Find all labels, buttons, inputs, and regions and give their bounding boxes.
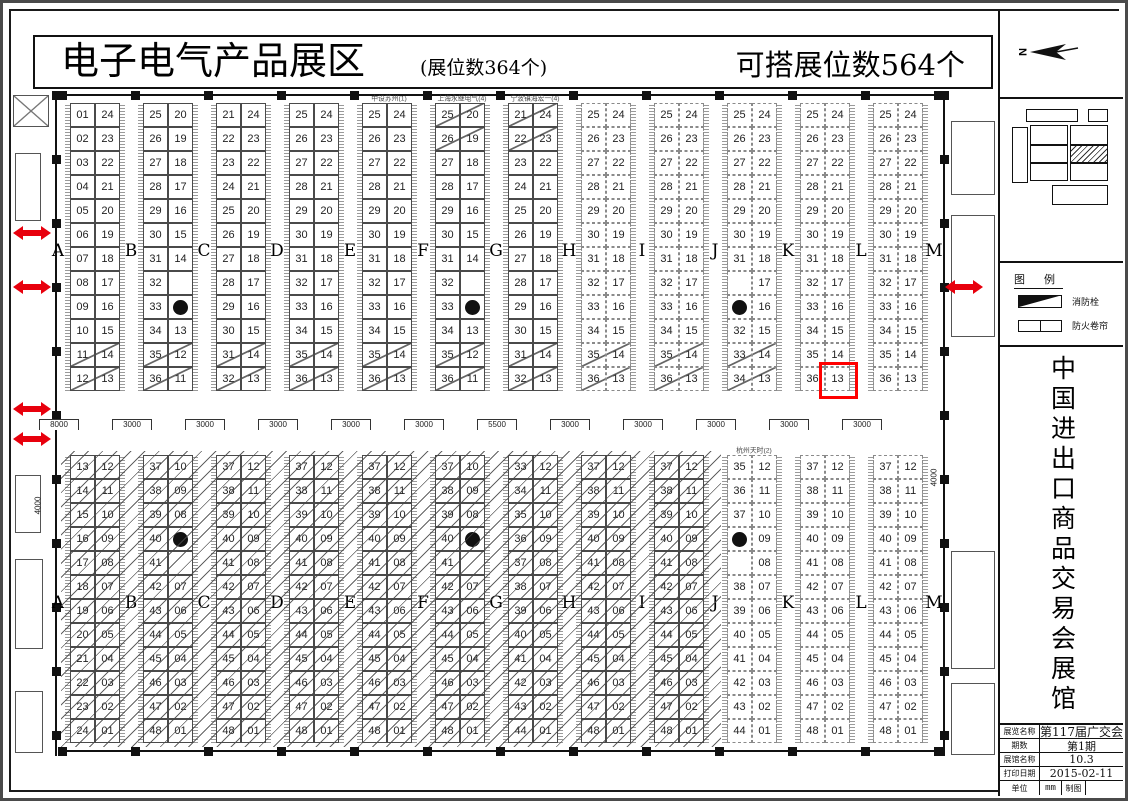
booth-cell[interactable]: 14 bbox=[387, 343, 412, 367]
booth-cell[interactable]: 42 bbox=[581, 575, 606, 599]
booth-cell[interactable]: 21 bbox=[70, 647, 95, 671]
booth-cell[interactable]: 18 bbox=[95, 247, 120, 271]
booth-cell[interactable]: 17 bbox=[825, 271, 850, 295]
booth-cell[interactable]: 39 bbox=[435, 503, 460, 527]
booth-cell[interactable]: 10 bbox=[70, 319, 95, 343]
booth-cell[interactable]: 38 bbox=[508, 575, 533, 599]
booth-cell[interactable]: 37 bbox=[654, 455, 679, 479]
booth-cell[interactable]: 01 bbox=[168, 719, 193, 743]
booth-cell[interactable]: 48 bbox=[581, 719, 606, 743]
booth-cell[interactable]: 40 bbox=[362, 527, 387, 551]
booth-cell[interactable]: 17 bbox=[679, 271, 704, 295]
booth-cell[interactable]: 44 bbox=[654, 623, 679, 647]
booth-cell[interactable]: 29 bbox=[216, 295, 241, 319]
booth-cell[interactable]: 28 bbox=[362, 175, 387, 199]
booth-cell[interactable]: 07 bbox=[95, 575, 120, 599]
booth-cell[interactable]: 05 bbox=[606, 623, 631, 647]
booth-cell[interactable]: 25 bbox=[800, 103, 825, 127]
booth-cell[interactable]: 09 bbox=[460, 479, 485, 503]
booth-cell[interactable]: 35 bbox=[435, 343, 460, 367]
booth-cell[interactable]: 24 bbox=[95, 103, 120, 127]
booth-cell[interactable]: 10 bbox=[533, 503, 558, 527]
booth-cell[interactable]: 14 bbox=[241, 343, 266, 367]
booth-cell[interactable]: 09 bbox=[898, 527, 923, 551]
booth-cell[interactable]: 41 bbox=[143, 551, 168, 575]
booth-cell[interactable]: 30 bbox=[216, 319, 241, 343]
booth-cell[interactable]: 17 bbox=[387, 271, 412, 295]
booth-cell[interactable]: 07 bbox=[898, 575, 923, 599]
booth-cell[interactable]: 09 bbox=[752, 527, 777, 551]
booth-cell[interactable]: 03 bbox=[679, 671, 704, 695]
booth-cell[interactable]: 07 bbox=[70, 247, 95, 271]
booth-cell[interactable]: 21 bbox=[606, 175, 631, 199]
booth-cell[interactable]: 02 bbox=[825, 695, 850, 719]
booth-cell[interactable]: 16 bbox=[387, 295, 412, 319]
booth-cell[interactable]: 17 bbox=[70, 551, 95, 575]
booth-cell[interactable]: 09 bbox=[241, 527, 266, 551]
booth-cell[interactable]: 06 bbox=[606, 599, 631, 623]
booth-cell[interactable]: 05 bbox=[168, 623, 193, 647]
booth-cell[interactable]: 28 bbox=[654, 175, 679, 199]
booth-cell[interactable]: 35 bbox=[873, 343, 898, 367]
booth-cell[interactable]: 16 bbox=[168, 199, 193, 223]
booth-cell[interactable]: 11 bbox=[241, 479, 266, 503]
booth-cell[interactable]: 13 bbox=[95, 367, 120, 391]
booth-cell[interactable]: 33 bbox=[800, 295, 825, 319]
booth-cell[interactable]: 26 bbox=[435, 127, 460, 151]
booth-cell[interactable]: 09 bbox=[70, 295, 95, 319]
booth-cell[interactable]: 06 bbox=[70, 223, 95, 247]
booth-cell[interactable]: 18 bbox=[825, 247, 850, 271]
booth-cell[interactable]: 17 bbox=[241, 271, 266, 295]
booth-cell[interactable]: 07 bbox=[460, 575, 485, 599]
booth-cell[interactable]: 08 bbox=[460, 503, 485, 527]
booth-cell[interactable]: 34 bbox=[654, 319, 679, 343]
booth-cell[interactable]: 11 bbox=[606, 479, 631, 503]
booth-cell[interactable]: 33 bbox=[581, 295, 606, 319]
booth-cell[interactable]: 45 bbox=[581, 647, 606, 671]
booth-cell[interactable]: 35 bbox=[581, 343, 606, 367]
booth-cell[interactable]: 12 bbox=[70, 367, 95, 391]
booth-cell[interactable]: 38 bbox=[289, 479, 314, 503]
booth-cell[interactable]: 37 bbox=[362, 455, 387, 479]
booth-cell[interactable]: 05 bbox=[533, 623, 558, 647]
booth-cell[interactable]: 34 bbox=[800, 319, 825, 343]
booth-cell[interactable]: 06 bbox=[314, 599, 339, 623]
booth-cell[interactable]: 16 bbox=[752, 295, 777, 319]
booth-cell[interactable]: 26 bbox=[727, 127, 752, 151]
booth-cell[interactable]: 46 bbox=[143, 671, 168, 695]
booth-cell[interactable]: 13 bbox=[314, 367, 339, 391]
booth-cell[interactable]: 22 bbox=[314, 151, 339, 175]
booth-cell[interactable]: 35 bbox=[362, 343, 387, 367]
booth-cell[interactable]: 28 bbox=[727, 175, 752, 199]
booth-cell[interactable]: 03 bbox=[898, 671, 923, 695]
booth-cell[interactable]: 19 bbox=[898, 223, 923, 247]
booth-cell[interactable]: 10 bbox=[825, 503, 850, 527]
booth-cell[interactable]: 29 bbox=[289, 199, 314, 223]
booth-cell[interactable]: 41 bbox=[216, 551, 241, 575]
booth-cell[interactable]: 40 bbox=[727, 623, 752, 647]
booth-cell[interactable]: 12 bbox=[825, 455, 850, 479]
booth-cell[interactable]: 18 bbox=[168, 151, 193, 175]
booth-cell[interactable]: 01 bbox=[752, 719, 777, 743]
booth-cell[interactable]: 15 bbox=[898, 319, 923, 343]
booth-cell[interactable]: 21 bbox=[314, 175, 339, 199]
booth-cell[interactable]: 37 bbox=[508, 551, 533, 575]
booth-cell[interactable]: 44 bbox=[508, 719, 533, 743]
booth-cell[interactable]: 47 bbox=[289, 695, 314, 719]
booth-cell[interactable]: 26 bbox=[654, 127, 679, 151]
booth-cell[interactable]: 13 bbox=[533, 367, 558, 391]
booth-cell[interactable]: 47 bbox=[435, 695, 460, 719]
booth-cell[interactable]: 39 bbox=[800, 503, 825, 527]
booth-cell[interactable]: 42 bbox=[143, 575, 168, 599]
booth-cell[interactable]: 46 bbox=[216, 671, 241, 695]
booth-cell[interactable]: 12 bbox=[241, 455, 266, 479]
booth-cell[interactable]: 46 bbox=[873, 671, 898, 695]
booth-cell[interactable]: 06 bbox=[752, 599, 777, 623]
booth-cell[interactable]: 25 bbox=[289, 103, 314, 127]
booth-cell[interactable]: 22 bbox=[387, 151, 412, 175]
booth-cell[interactable]: 04 bbox=[70, 175, 95, 199]
booth-cell[interactable]: 15 bbox=[168, 223, 193, 247]
booth-cell[interactable]: 33 bbox=[435, 295, 460, 319]
booth-cell[interactable]: 11 bbox=[168, 367, 193, 391]
booth-cell[interactable]: 07 bbox=[679, 575, 704, 599]
booth-cell[interactable]: 03 bbox=[752, 671, 777, 695]
booth-cell[interactable]: 08 bbox=[533, 551, 558, 575]
booth-cell[interactable]: 04 bbox=[825, 647, 850, 671]
booth-cell[interactable]: 42 bbox=[508, 671, 533, 695]
booth-cell[interactable]: 08 bbox=[606, 551, 631, 575]
booth-cell[interactable]: 10 bbox=[606, 503, 631, 527]
booth-cell[interactable]: 15 bbox=[241, 319, 266, 343]
booth-cell[interactable]: 19 bbox=[95, 223, 120, 247]
booth-cell[interactable]: 02 bbox=[70, 127, 95, 151]
booth-cell[interactable]: 09 bbox=[533, 527, 558, 551]
booth-cell[interactable]: 11 bbox=[679, 479, 704, 503]
booth-cell[interactable]: 30 bbox=[508, 319, 533, 343]
booth-cell[interactable]: 19 bbox=[70, 599, 95, 623]
booth-cell[interactable]: 02 bbox=[314, 695, 339, 719]
booth-cell[interactable]: 41 bbox=[581, 551, 606, 575]
booth-cell[interactable]: 13 bbox=[679, 367, 704, 391]
booth-cell[interactable]: 04 bbox=[95, 647, 120, 671]
booth-cell[interactable]: 31 bbox=[289, 247, 314, 271]
booth-cell[interactable]: 21 bbox=[216, 103, 241, 127]
booth-cell[interactable]: 45 bbox=[289, 647, 314, 671]
booth-cell[interactable]: 04 bbox=[314, 647, 339, 671]
booth-cell[interactable]: 06 bbox=[898, 599, 923, 623]
booth-cell[interactable]: 33 bbox=[508, 455, 533, 479]
booth-cell[interactable]: 21 bbox=[95, 175, 120, 199]
booth-cell[interactable]: 04 bbox=[241, 647, 266, 671]
booth-cell[interactable]: 13 bbox=[606, 367, 631, 391]
booth-cell[interactable]: 32 bbox=[508, 367, 533, 391]
booth-cell[interactable]: 10 bbox=[241, 503, 266, 527]
booth-cell[interactable]: 32 bbox=[800, 271, 825, 295]
booth-cell[interactable]: 22 bbox=[70, 671, 95, 695]
booth-cell[interactable]: 21 bbox=[825, 175, 850, 199]
booth-cell[interactable]: 23 bbox=[216, 151, 241, 175]
booth-cell[interactable]: 14 bbox=[898, 343, 923, 367]
booth-cell[interactable]: 32 bbox=[727, 319, 752, 343]
booth-cell[interactable]: 05 bbox=[460, 623, 485, 647]
booth-cell[interactable]: 25 bbox=[362, 103, 387, 127]
booth-cell[interactable]: 33 bbox=[727, 343, 752, 367]
booth-cell[interactable]: 36 bbox=[873, 367, 898, 391]
booth-cell[interactable]: 05 bbox=[679, 623, 704, 647]
booth-cell[interactable]: 11 bbox=[533, 479, 558, 503]
booth-cell[interactable]: 18 bbox=[460, 151, 485, 175]
booth-cell[interactable]: 01 bbox=[387, 719, 412, 743]
booth-cell[interactable]: 21 bbox=[533, 175, 558, 199]
booth-cell[interactable]: 18 bbox=[241, 247, 266, 271]
booth-cell[interactable]: 43 bbox=[143, 599, 168, 623]
booth-cell[interactable]: 23 bbox=[679, 127, 704, 151]
booth-cell[interactable]: 17 bbox=[460, 175, 485, 199]
booth-cell[interactable]: 32 bbox=[581, 271, 606, 295]
booth-cell[interactable]: 45 bbox=[216, 647, 241, 671]
booth-cell[interactable]: 19 bbox=[314, 223, 339, 247]
booth-cell[interactable]: 05 bbox=[95, 623, 120, 647]
booth-cell[interactable]: 06 bbox=[241, 599, 266, 623]
booth-cell[interactable]: 07 bbox=[387, 575, 412, 599]
booth-cell[interactable]: 22 bbox=[508, 127, 533, 151]
booth-cell[interactable]: 05 bbox=[752, 623, 777, 647]
booth-cell[interactable]: 37 bbox=[216, 455, 241, 479]
booth-cell[interactable]: 29 bbox=[362, 199, 387, 223]
booth-cell[interactable]: 29 bbox=[727, 199, 752, 223]
booth-cell[interactable]: 15 bbox=[533, 319, 558, 343]
booth-cell[interactable]: 01 bbox=[533, 719, 558, 743]
booth-cell[interactable]: 27 bbox=[581, 151, 606, 175]
booth-cell[interactable]: 24 bbox=[216, 175, 241, 199]
booth-cell[interactable]: 22 bbox=[606, 151, 631, 175]
booth-cell[interactable]: 48 bbox=[362, 719, 387, 743]
booth-cell[interactable]: 05 bbox=[898, 623, 923, 647]
booth-cell[interactable]: 30 bbox=[800, 223, 825, 247]
booth-cell[interactable]: 22 bbox=[825, 151, 850, 175]
booth-cell[interactable]: 47 bbox=[654, 695, 679, 719]
booth-cell[interactable]: 24 bbox=[898, 103, 923, 127]
booth-cell[interactable]: 38 bbox=[581, 479, 606, 503]
booth-cell[interactable]: 29 bbox=[581, 199, 606, 223]
booth-cell[interactable]: 23 bbox=[825, 127, 850, 151]
booth-cell[interactable]: 26 bbox=[216, 223, 241, 247]
booth-cell[interactable]: 30 bbox=[435, 223, 460, 247]
booth-cell[interactable]: 06 bbox=[168, 599, 193, 623]
booth-cell[interactable]: 27 bbox=[216, 247, 241, 271]
booth-cell[interactable]: 13 bbox=[241, 367, 266, 391]
booth-cell[interactable]: 20 bbox=[825, 199, 850, 223]
booth-cell[interactable]: 24 bbox=[70, 719, 95, 743]
booth-cell[interactable]: 30 bbox=[362, 223, 387, 247]
booth-cell[interactable]: 30 bbox=[581, 223, 606, 247]
booth-cell[interactable]: 03 bbox=[460, 671, 485, 695]
booth-cell[interactable]: 06 bbox=[533, 599, 558, 623]
booth-cell[interactable]: 47 bbox=[216, 695, 241, 719]
booth-cell[interactable]: 03 bbox=[387, 671, 412, 695]
booth-cell[interactable]: 33 bbox=[654, 295, 679, 319]
booth-cell[interactable]: 18 bbox=[70, 575, 95, 599]
booth-cell[interactable]: 04 bbox=[679, 647, 704, 671]
booth-cell[interactable]: 40 bbox=[143, 527, 168, 551]
booth-cell[interactable]: 02 bbox=[168, 695, 193, 719]
booth-cell[interactable]: 15 bbox=[314, 319, 339, 343]
booth-cell[interactable]: 14 bbox=[679, 343, 704, 367]
booth-cell[interactable]: 10 bbox=[387, 503, 412, 527]
booth-cell[interactable]: 36 bbox=[289, 367, 314, 391]
booth-cell[interactable]: 12 bbox=[387, 455, 412, 479]
booth-cell[interactable]: 22 bbox=[216, 127, 241, 151]
booth-cell[interactable]: 42 bbox=[362, 575, 387, 599]
booth-cell[interactable]: 14 bbox=[95, 343, 120, 367]
booth-cell[interactable]: 29 bbox=[873, 199, 898, 223]
booth-cell[interactable]: 26 bbox=[581, 127, 606, 151]
booth-cell[interactable]: 37 bbox=[435, 455, 460, 479]
booth-cell[interactable]: 20 bbox=[752, 199, 777, 223]
booth-cell[interactable]: 28 bbox=[143, 175, 168, 199]
booth-cell[interactable]: 15 bbox=[825, 319, 850, 343]
booth-cell[interactable]: 01 bbox=[606, 719, 631, 743]
booth-cell[interactable]: 25 bbox=[216, 199, 241, 223]
booth-cell[interactable]: 20 bbox=[606, 199, 631, 223]
booth-cell[interactable]: 30 bbox=[289, 223, 314, 247]
booth-cell[interactable]: 16 bbox=[95, 295, 120, 319]
booth-cell[interactable]: 04 bbox=[387, 647, 412, 671]
booth-cell[interactable]: 08 bbox=[241, 551, 266, 575]
booth-cell[interactable]: 21 bbox=[387, 175, 412, 199]
booth-cell[interactable]: 05 bbox=[387, 623, 412, 647]
booth-cell[interactable]: 35 bbox=[727, 455, 752, 479]
booth-cell[interactable]: 34 bbox=[508, 479, 533, 503]
booth-cell[interactable]: 30 bbox=[143, 223, 168, 247]
booth-cell[interactable]: 44 bbox=[362, 623, 387, 647]
booth-cell[interactable]: 31 bbox=[581, 247, 606, 271]
booth-cell[interactable]: 16 bbox=[460, 199, 485, 223]
booth-cell[interactable]: 02 bbox=[95, 695, 120, 719]
booth-cell[interactable]: 36 bbox=[362, 367, 387, 391]
booth-cell[interactable]: 15 bbox=[752, 319, 777, 343]
booth-cell[interactable]: 02 bbox=[460, 695, 485, 719]
booth-cell[interactable]: 12 bbox=[460, 343, 485, 367]
booth-cell[interactable]: 12 bbox=[752, 455, 777, 479]
booth-cell[interactable]: 38 bbox=[362, 479, 387, 503]
booth-cell[interactable]: 15 bbox=[95, 319, 120, 343]
booth-cell[interactable]: 09 bbox=[606, 527, 631, 551]
booth-cell[interactable]: 24 bbox=[679, 103, 704, 127]
booth-cell[interactable]: 31 bbox=[873, 247, 898, 271]
booth-cell[interactable]: 03 bbox=[95, 671, 120, 695]
booth-cell[interactable]: 41 bbox=[508, 647, 533, 671]
booth-cell[interactable]: 38 bbox=[654, 479, 679, 503]
booth-cell[interactable]: 27 bbox=[654, 151, 679, 175]
booth-cell[interactable]: 21 bbox=[898, 175, 923, 199]
booth-cell[interactable]: 23 bbox=[752, 127, 777, 151]
booth-cell[interactable]: 28 bbox=[581, 175, 606, 199]
booth-cell[interactable]: 32 bbox=[362, 271, 387, 295]
booth-cell[interactable]: 16 bbox=[898, 295, 923, 319]
booth-cell[interactable]: 32 bbox=[216, 367, 241, 391]
booth-cell[interactable]: 13 bbox=[168, 319, 193, 343]
booth-cell[interactable]: 46 bbox=[435, 671, 460, 695]
booth-cell[interactable]: 47 bbox=[800, 695, 825, 719]
booth-cell[interactable]: 37 bbox=[581, 455, 606, 479]
booth-cell[interactable]: 19 bbox=[168, 127, 193, 151]
booth-cell[interactable]: 04 bbox=[533, 647, 558, 671]
booth-cell[interactable]: 01 bbox=[70, 103, 95, 127]
booth-cell[interactable]: 38 bbox=[800, 479, 825, 503]
booth-cell[interactable]: 29 bbox=[654, 199, 679, 223]
booth-cell[interactable]: 25 bbox=[727, 103, 752, 127]
booth-cell[interactable]: 14 bbox=[168, 247, 193, 271]
booth-cell[interactable]: 09 bbox=[95, 527, 120, 551]
booth-cell[interactable]: 34 bbox=[873, 319, 898, 343]
booth-cell[interactable]: 12 bbox=[606, 455, 631, 479]
booth-cell[interactable]: 31 bbox=[216, 343, 241, 367]
booth-cell[interactable]: 23 bbox=[606, 127, 631, 151]
booth-cell[interactable]: 33 bbox=[873, 295, 898, 319]
booth-cell[interactable]: 29 bbox=[435, 199, 460, 223]
booth-cell[interactable]: 14 bbox=[752, 343, 777, 367]
booth-cell[interactable]: 07 bbox=[752, 575, 777, 599]
booth-cell[interactable]: 24 bbox=[241, 103, 266, 127]
booth-cell[interactable]: 14 bbox=[314, 343, 339, 367]
booth-cell[interactable]: 26 bbox=[143, 127, 168, 151]
booth-cell[interactable]: 36 bbox=[727, 479, 752, 503]
booth-cell[interactable]: 22 bbox=[898, 151, 923, 175]
booth-cell[interactable]: 12 bbox=[95, 455, 120, 479]
booth-cell[interactable]: 46 bbox=[362, 671, 387, 695]
booth-cell[interactable]: 31 bbox=[800, 247, 825, 271]
booth-cell[interactable]: 34 bbox=[143, 319, 168, 343]
booth-cell[interactable]: 20 bbox=[95, 199, 120, 223]
booth-cell[interactable]: 08 bbox=[898, 551, 923, 575]
booth-cell[interactable]: 08 bbox=[387, 551, 412, 575]
booth-cell[interactable]: 23 bbox=[70, 695, 95, 719]
booth-cell[interactable]: 47 bbox=[362, 695, 387, 719]
booth-cell[interactable]: 44 bbox=[289, 623, 314, 647]
booth-cell[interactable]: 29 bbox=[143, 199, 168, 223]
booth-cell[interactable]: 08 bbox=[314, 551, 339, 575]
booth-cell[interactable]: 25 bbox=[581, 103, 606, 127]
booth-cell[interactable]: 32 bbox=[289, 271, 314, 295]
booth-cell[interactable]: 28 bbox=[435, 175, 460, 199]
booth-cell[interactable]: 39 bbox=[289, 503, 314, 527]
booth-cell[interactable]: 26 bbox=[362, 127, 387, 151]
booth-cell[interactable]: 28 bbox=[873, 175, 898, 199]
booth-cell[interactable]: 26 bbox=[800, 127, 825, 151]
booth-cell[interactable]: 22 bbox=[679, 151, 704, 175]
booth-cell[interactable]: 13 bbox=[460, 319, 485, 343]
booth-cell[interactable]: 04 bbox=[752, 647, 777, 671]
booth-cell[interactable]: 35 bbox=[289, 343, 314, 367]
booth-cell[interactable]: 22 bbox=[752, 151, 777, 175]
booth-cell[interactable]: 20 bbox=[533, 199, 558, 223]
booth-cell[interactable]: 16 bbox=[70, 527, 95, 551]
booth-cell[interactable]: 23 bbox=[898, 127, 923, 151]
booth-cell[interactable]: 24 bbox=[825, 103, 850, 127]
booth-cell[interactable]: 28 bbox=[508, 271, 533, 295]
booth-cell[interactable]: 23 bbox=[508, 151, 533, 175]
booth-cell[interactable]: 44 bbox=[143, 623, 168, 647]
booth-cell[interactable]: 31 bbox=[508, 343, 533, 367]
booth-cell[interactable]: 04 bbox=[606, 647, 631, 671]
booth-cell[interactable]: 45 bbox=[873, 647, 898, 671]
booth-cell[interactable]: 20 bbox=[314, 199, 339, 223]
